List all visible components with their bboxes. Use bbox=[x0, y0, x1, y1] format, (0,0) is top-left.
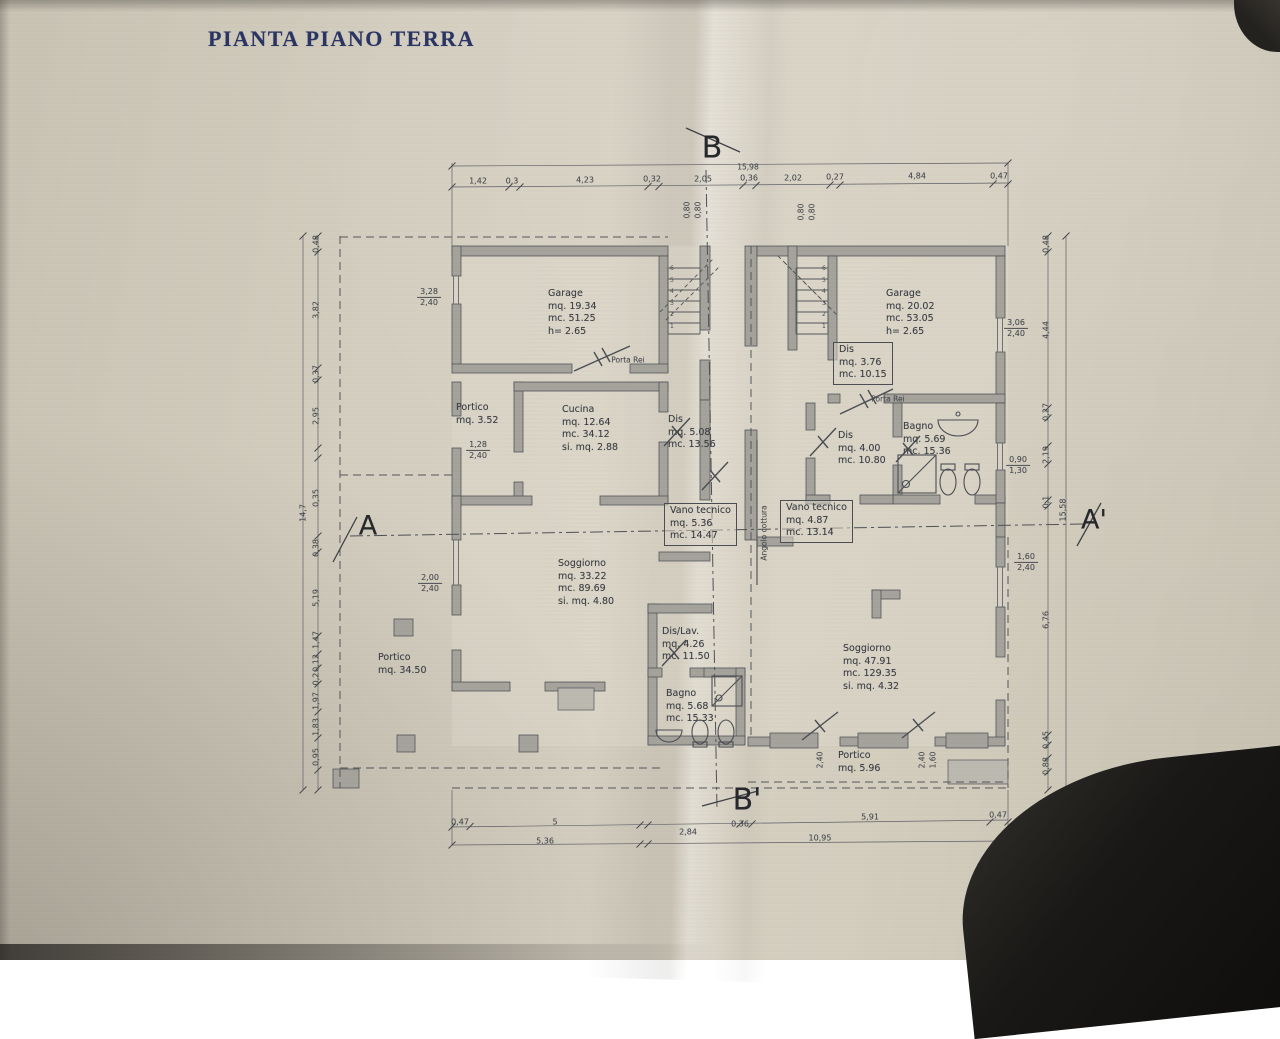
dim-label: 2,40 bbox=[918, 752, 927, 769]
dim-label: 5,91 bbox=[861, 813, 879, 822]
dim-label: 2,05 bbox=[694, 175, 712, 184]
dim-label: 1,47 bbox=[312, 631, 321, 649]
dim-label: 0,80 bbox=[808, 204, 817, 221]
photo-edge-shadow-left bbox=[0, 0, 10, 960]
photo-dark-corner-top-right bbox=[1234, 0, 1280, 52]
room-label-bagno-right: Bagnomq. 5.69mc. 15.36 bbox=[903, 421, 951, 459]
dim-label: 4,84 bbox=[908, 172, 926, 181]
dim-label: 2,02 bbox=[784, 174, 802, 183]
dim-label: 2,95 bbox=[312, 407, 321, 425]
dim-label: 0,27 bbox=[1042, 403, 1051, 421]
dim-label: 0,1 bbox=[1042, 496, 1051, 509]
dim-label: 0,47 bbox=[990, 172, 1008, 181]
photo-dark-corner-bottom-right bbox=[947, 741, 1280, 1039]
dim-label: 0,37 bbox=[312, 365, 321, 383]
dim-label: 1,97 bbox=[312, 692, 321, 710]
dim-label: 0,47 bbox=[451, 818, 469, 827]
dim-label: 0,80 bbox=[694, 202, 703, 219]
dim-label: 3,82 bbox=[312, 301, 321, 319]
room-label-cucina: Cucinamq. 12.64mc. 34.12si. mq. 2.88 bbox=[562, 404, 618, 454]
dim-label: 0,35 bbox=[312, 489, 321, 507]
dim-label: 0,88 bbox=[1042, 757, 1051, 775]
dim-label: 2,40 bbox=[816, 752, 825, 769]
dim-label: 0,38 bbox=[312, 539, 321, 557]
dim-label: 0,36 bbox=[740, 174, 758, 183]
stair-step-numbers-right: 654 321 bbox=[822, 265, 826, 330]
stair-step-numbers-left: 654 321 bbox=[670, 265, 674, 330]
dim-label: 0,2 bbox=[312, 673, 321, 686]
dim-label: 1,83 bbox=[312, 718, 321, 736]
dim-opening-bagno-right: 0,901,30 bbox=[1006, 455, 1030, 475]
dim-label: 4,23 bbox=[576, 176, 594, 185]
room-label-garage-left: Garagemq. 19.34mc. 51.25h= 2.65 bbox=[548, 288, 597, 338]
room-label-dis-left: Dismq. 5.08mc. 13.56 bbox=[668, 414, 716, 452]
room-label-portico-big: Porticomq. 34.50 bbox=[378, 652, 427, 677]
porta-rei-label-right: Porta Rei bbox=[871, 395, 904, 404]
dim-label: 4,44 bbox=[1042, 321, 1051, 339]
dim-total-left: 14,7 bbox=[299, 504, 308, 522]
section-marker-B: B bbox=[702, 131, 723, 166]
dim-total-top: 15,98 bbox=[737, 163, 758, 172]
dim-opening-soggiorno-left: 2,002,40 bbox=[418, 573, 442, 593]
dim-label: 0,95 bbox=[312, 748, 321, 766]
dim-opening-soggiorno-right: 1,602,40 bbox=[1014, 552, 1038, 572]
dim-total-right: 15,58 bbox=[1059, 499, 1068, 522]
dim-label: 0,36 bbox=[731, 820, 749, 829]
dim-label: 2,84 bbox=[679, 828, 697, 837]
room-label-vano-tecnico-right: Vano tecnicomq. 4.87mc. 13.14 bbox=[780, 500, 853, 543]
dim-label: 1,42 bbox=[469, 177, 487, 186]
room-label-vano-tecnico-left: Vano tecnicomq. 5.36mc. 14.47 bbox=[664, 503, 737, 546]
dim-label: 0,80 bbox=[797, 204, 806, 221]
dim-label: 0,80 bbox=[683, 202, 692, 219]
dim-label: 5,19 bbox=[312, 589, 321, 607]
dim-label: 0,3 bbox=[506, 177, 519, 186]
dim-label: 0,45 bbox=[1042, 731, 1051, 749]
dim-label: 2,19 bbox=[1042, 446, 1051, 464]
dim-opening-portico-left: 1,282,40 bbox=[466, 440, 490, 460]
staircase-right bbox=[778, 256, 838, 334]
dim-label: 6,76 bbox=[1042, 611, 1051, 629]
dim-label: 5 bbox=[552, 818, 557, 827]
room-label-portico-right: Porticomq. 5.96 bbox=[838, 750, 880, 775]
room-label-garage-right: Garagemq. 20.02mc. 53.05h= 2.65 bbox=[886, 288, 935, 338]
photo-edge-shadow-top bbox=[0, 0, 1280, 12]
dim-label: 0,47 bbox=[989, 811, 1007, 820]
room-label-bagno-left: Bagnomq. 5.68mc. 15.33 bbox=[666, 688, 714, 726]
room-label-dis-box-right: Dismq. 3.76mc. 10.15 bbox=[833, 342, 893, 385]
scanned-floor-plan-photo: PIANTA PIANO TERRA bbox=[0, 0, 1280, 960]
dim-label: 0,32 bbox=[643, 175, 661, 184]
room-label-dislav: Dis/Lav.mq. 4.26mc. 11.50 bbox=[662, 626, 710, 664]
dim-label: 0,48 bbox=[312, 235, 321, 253]
photo-edge-shadow-bottom bbox=[0, 944, 896, 960]
dim-total-bottom-left: 5,36 bbox=[536, 837, 554, 846]
dim-opening-garage-right: 3,062,40 bbox=[1004, 318, 1028, 338]
section-marker-A-prime: A' bbox=[1081, 505, 1107, 536]
dim-total-bottom-right: 10,95 bbox=[809, 834, 832, 843]
dim-label: 0,12 bbox=[312, 654, 321, 672]
dim-label: 0,27 bbox=[826, 173, 844, 182]
dim-label: 0,48 bbox=[1042, 235, 1051, 253]
room-label-portico-small: Porticomq. 3.52 bbox=[456, 402, 498, 427]
drawing-title: PIANTA PIANO TERRA bbox=[208, 26, 475, 52]
angolo-cottura-label: Angolo cottura bbox=[760, 505, 769, 560]
dim-opening-garage-left: 3,282,40 bbox=[417, 287, 441, 307]
room-label-soggiorno-left: Soggiornomq. 33.22mc. 89.69si. mq. 4.80 bbox=[558, 558, 614, 608]
room-label-dis-right: Dismq. 4.00mc. 10.80 bbox=[838, 430, 886, 468]
porta-rei-label-left: Porta Rei bbox=[611, 356, 644, 365]
dim-label: 1,60 bbox=[929, 752, 938, 769]
section-marker-A: A bbox=[359, 511, 377, 542]
section-marker-B-prime: B' bbox=[733, 783, 762, 818]
room-label-soggiorno-right: Soggiornomq. 47.91mc. 129.35si. mq. 4.32 bbox=[843, 643, 899, 693]
